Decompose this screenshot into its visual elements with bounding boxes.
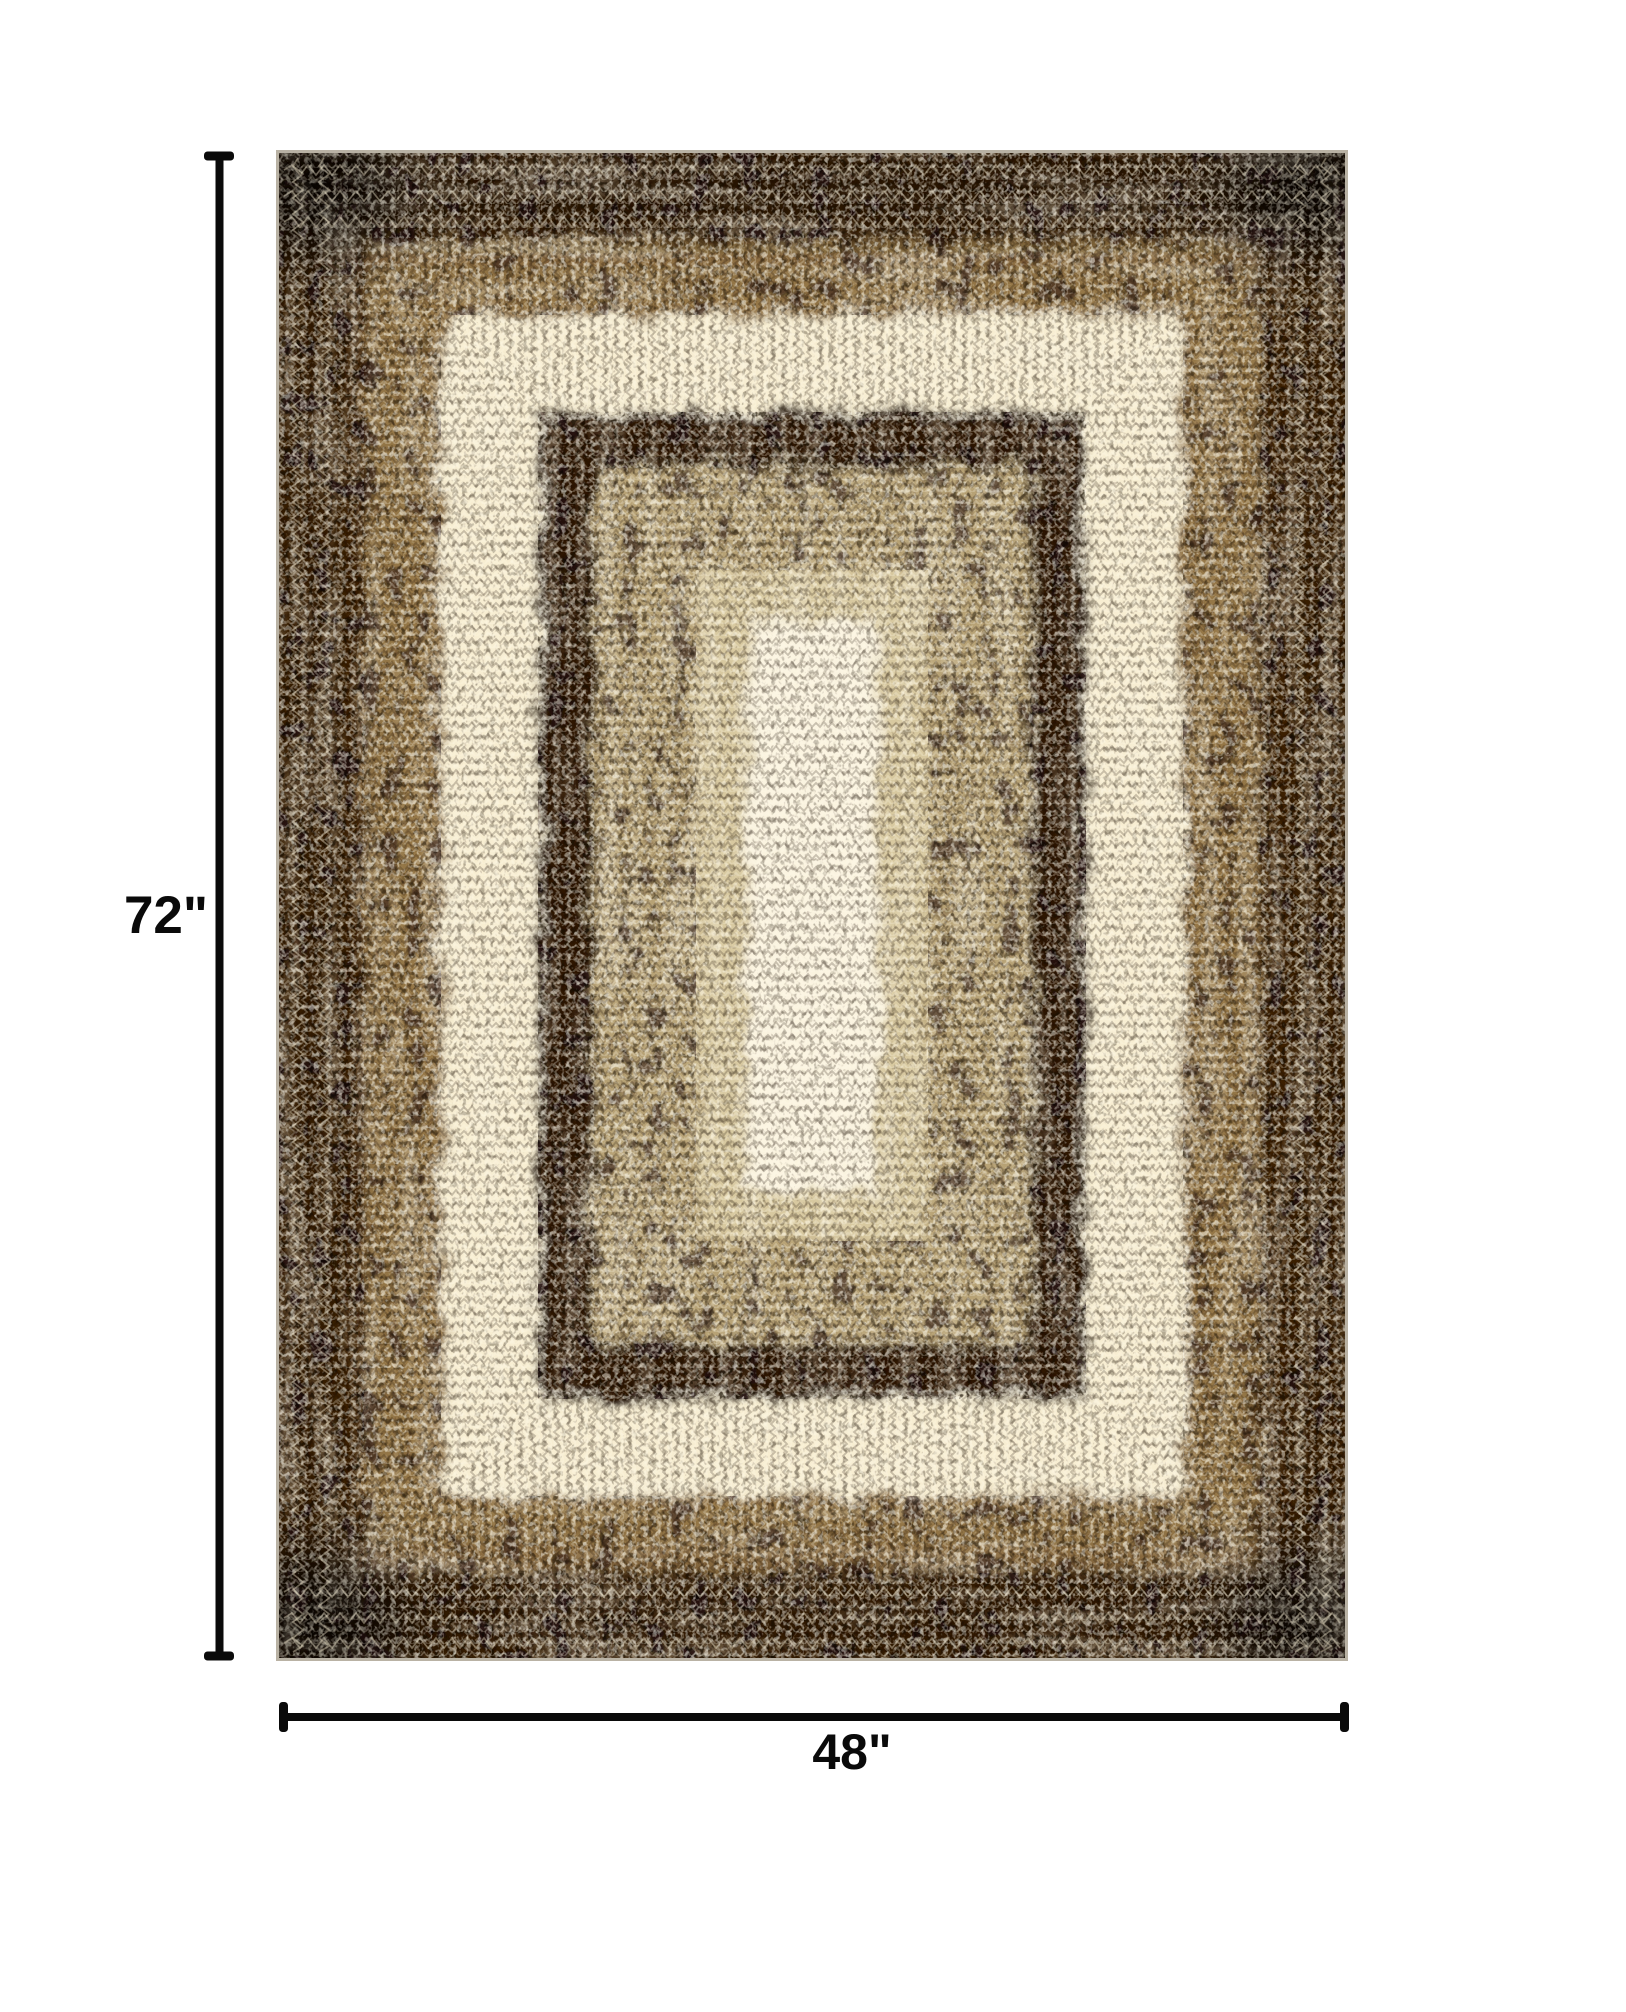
svg-text:48": 48"	[812, 1724, 891, 1780]
svg-text:72": 72"	[124, 886, 208, 945]
